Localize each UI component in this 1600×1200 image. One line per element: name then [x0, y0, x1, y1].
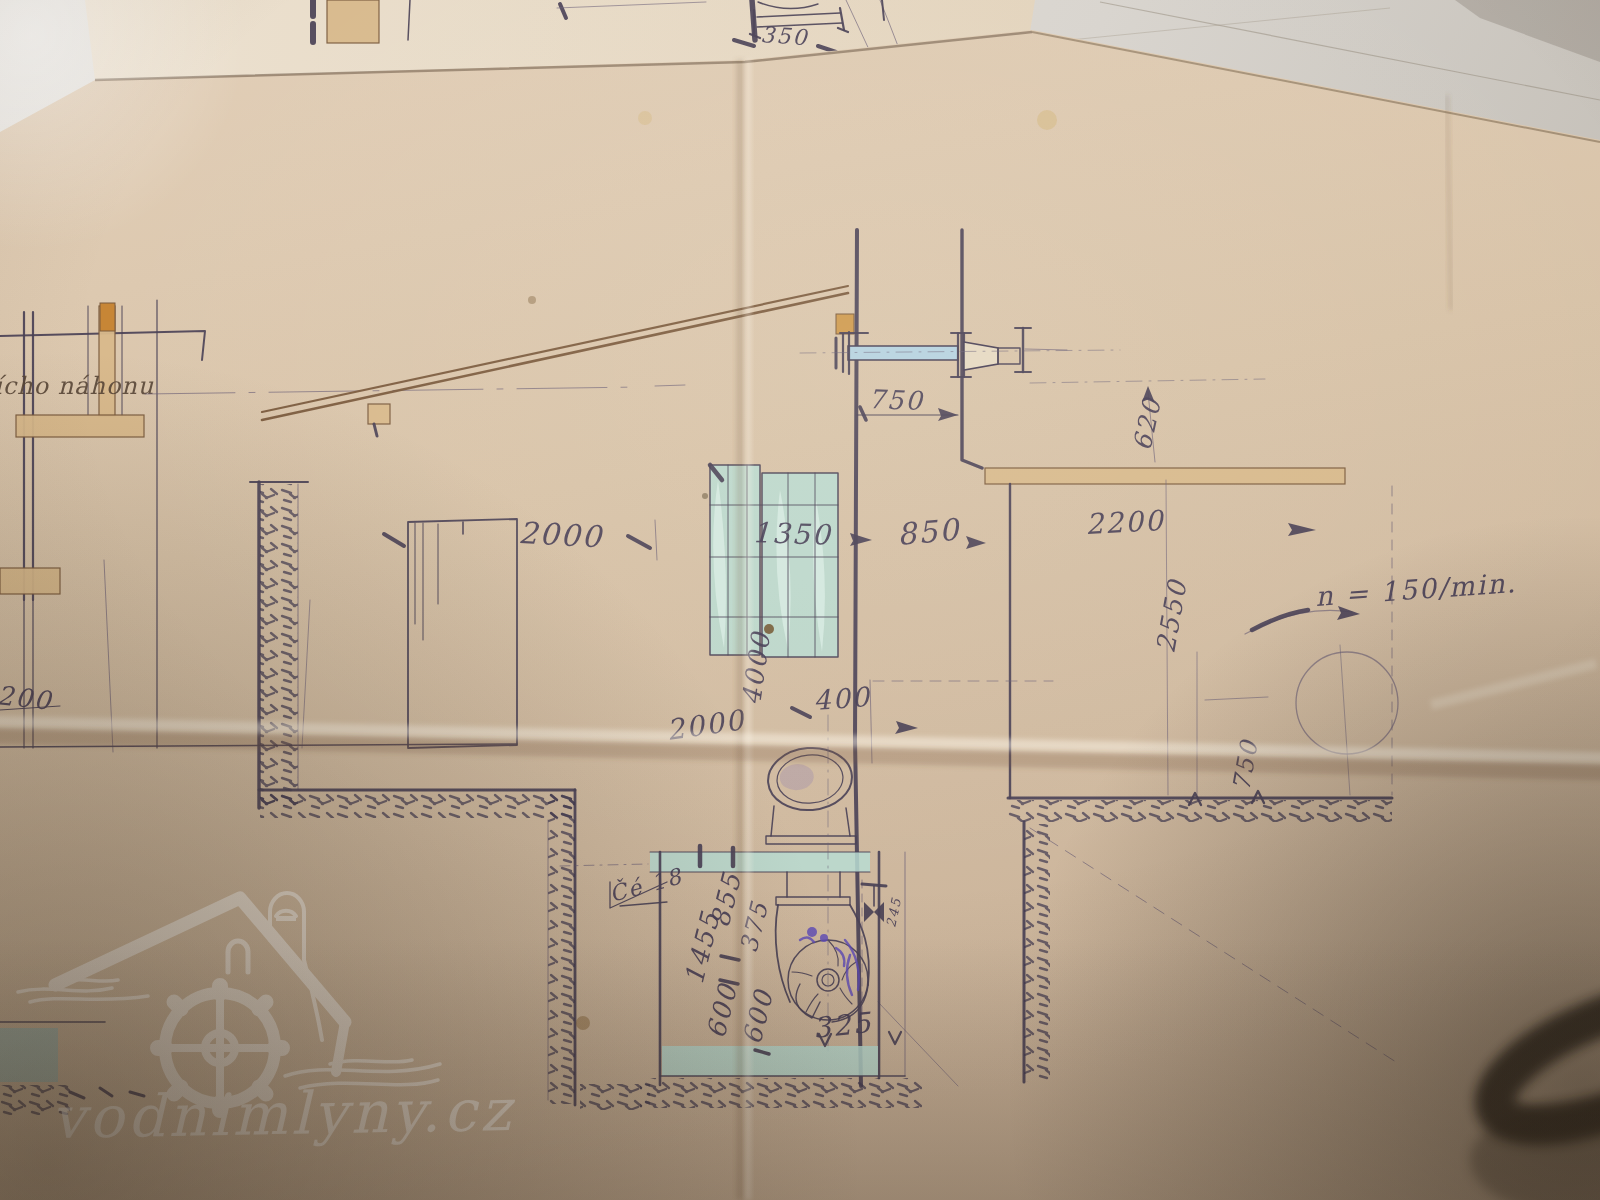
- dim-top-fragment: 350: [760, 22, 810, 50]
- dim-wall-gap: 850: [896, 512, 963, 552]
- left-wall-hatch: [260, 484, 298, 806]
- watermark-text: vodnimlyny.cz: [51, 1076, 516, 1152]
- step-wall-hatch: [548, 792, 575, 1104]
- dim-rack-width: 1350: [752, 516, 833, 552]
- wood-beam: [16, 415, 144, 437]
- upper-wood-band: [327, 0, 379, 43]
- left-footing-hatch: [260, 792, 575, 818]
- photo-of-blueprint: 350 ícho náhonu 200: [0, 0, 1600, 1200]
- dim-bay-left: 2000: [518, 515, 605, 554]
- shaft: [848, 346, 958, 360]
- wood-beam-lower: [0, 568, 60, 594]
- channel-band: [650, 852, 870, 872]
- left-fragment-wash: [0, 1028, 58, 1082]
- right-pit-wall-hatch: [1024, 824, 1050, 1082]
- blueprint-photo-svg: 350 ícho náhonu 200: [0, 0, 1600, 1200]
- vertical-fold-highlight: [745, 60, 751, 1200]
- violet-blob: [807, 927, 817, 937]
- tailwater-band: [662, 1046, 878, 1076]
- vertical-fold-shadow: [736, 60, 744, 1200]
- roof-block-left: [368, 404, 390, 424]
- dim-left-edge: 200: [0, 680, 54, 716]
- trash-rack: [710, 465, 838, 657]
- roof-block-right: [836, 314, 854, 334]
- wood-column-cap: [100, 303, 115, 331]
- note-headrace: ícho náhonu: [0, 372, 154, 400]
- pit-bottom-hatch: [640, 1078, 922, 1108]
- watermark-tower-window: [276, 916, 296, 921]
- floor-beam: [985, 468, 1345, 484]
- dim-room-right: 2200: [1085, 504, 1166, 541]
- dim-shaft-offset: 750: [868, 384, 925, 416]
- ink-stain: [764, 624, 774, 634]
- dim-pipe-offset: 400: [812, 681, 872, 716]
